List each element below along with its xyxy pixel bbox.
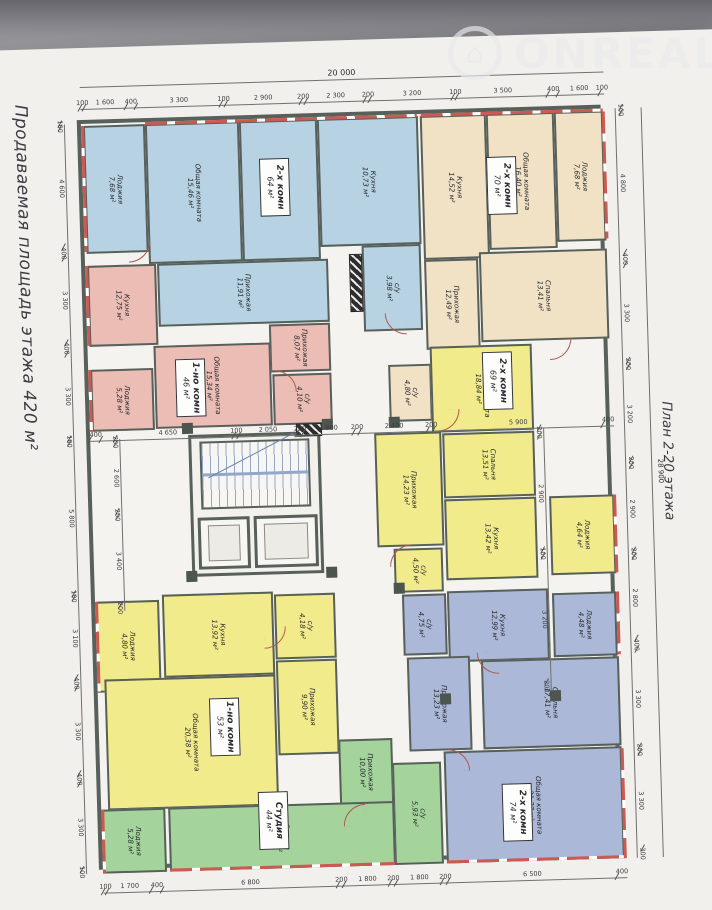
dimension-column-inner-left: 2002 6002003 400200 xyxy=(110,439,125,611)
photo-of-floor-plan: Продаваемая площадь этажа 420 м² План 2-… xyxy=(0,0,712,910)
room-studio44-loggia: Лоджия5,28 м² xyxy=(101,808,167,874)
room-violet74-wc: с/у4,75 м² xyxy=(402,593,448,655)
dimension-segment: 1 600 xyxy=(559,94,600,95)
room-beige70-kitchen: Кухня14,52 м² xyxy=(420,114,490,260)
dimension-segment: 2 800 xyxy=(629,557,640,639)
door-arc xyxy=(128,240,151,263)
dimension-segment: 3 300 xyxy=(72,689,84,775)
dimension-segment: 3 300 xyxy=(74,784,86,870)
column-marker xyxy=(186,571,197,582)
room-yellow69-bedroom: Спальня13,51 м² xyxy=(442,431,536,499)
room-yellow53-living: Общая комната20,38 м² xyxy=(104,674,279,810)
paper-sheet: Продаваемая площадь этажа 420 м² План 2-… xyxy=(0,29,712,910)
column-marker xyxy=(550,690,561,701)
dimension-segment: 3 200 xyxy=(623,367,635,461)
column-marker xyxy=(394,583,405,594)
room-yellow53-hall: Прихожая9,90 м² xyxy=(276,659,340,756)
dimension-segment: 3 300 xyxy=(632,650,644,747)
dimension-segment: 3 300 xyxy=(62,354,74,440)
stairwell xyxy=(199,438,311,509)
apartment-label-yellow53: 1-но комн53 м² xyxy=(209,698,241,757)
dimension-segment: 3 300 xyxy=(136,105,221,108)
elevator-shaft xyxy=(254,514,320,568)
room-pink46-kitchen: Кухня12,75 м² xyxy=(87,264,158,347)
room-beige70-hall: Прихожая12,49 м² xyxy=(424,258,481,350)
dimension-segment: 200 xyxy=(542,682,551,690)
vent-shaft xyxy=(349,254,364,312)
dimension-segment: 5 800 xyxy=(64,444,77,595)
room-beige70-bedroom: Спальня13,41 м² xyxy=(479,248,610,342)
dimension-row-bottom: 1001 7004006 8002001 8002001 8002006 500… xyxy=(103,868,627,894)
door-arc xyxy=(389,544,412,567)
dimension-segment: 4 800 xyxy=(616,113,629,254)
dimension-segment: 300 xyxy=(638,849,647,858)
apartment-label-pink46: 1-но комн46 м² xyxy=(175,358,207,417)
room-blue64-kitchen: Кухня10,73 м² xyxy=(317,116,422,247)
room-yellow69-hall: Прихожая14,23 м² xyxy=(374,431,444,547)
door-arc xyxy=(477,652,500,675)
room-blue64-loggia: Лоджия7,68 м² xyxy=(83,124,149,254)
room-studio44-wc: с/у5,93 м² xyxy=(392,762,444,865)
house-logo-icon: ⌂ xyxy=(448,26,502,80)
dimension-segment: 1 800 xyxy=(396,883,443,884)
dimension-segment: 3 500 xyxy=(458,95,549,98)
room-violet74-loggia: Лоджия4,48 м² xyxy=(552,591,618,657)
apartment-label-beige70: 2-х комн70 м² xyxy=(486,156,518,215)
room-beige70-loggia: Лоджия7,68 м² xyxy=(554,111,607,242)
room-blue64-hall: Прихожая11,91 м² xyxy=(157,259,330,327)
room-pink46-loggia: Лоджия5,28 м² xyxy=(90,368,155,432)
apartment-label-blue64: 2-х комн64 м² xyxy=(259,158,291,217)
dimension-segment: 3 100 xyxy=(69,598,80,679)
dimension-segment: 3 400 xyxy=(113,517,125,606)
stair-elevator-core xyxy=(188,431,324,577)
room-pink46-hall: Прихожая8,07 м² xyxy=(269,323,331,373)
door-arc xyxy=(549,338,572,361)
dimension-segment: 4 600 xyxy=(55,129,68,248)
floor-plan: 20 000 28 900 1001 6004003 3001002 90020… xyxy=(77,105,623,870)
column-marker xyxy=(440,693,451,704)
room-beige70-wc: с/у4,80 м² xyxy=(388,364,433,422)
apartment-label-studio44: Студия44 м² xyxy=(258,791,290,850)
dimension-segment: 2 900 xyxy=(626,466,638,551)
room-yellow69-kitchen: Кухня13,42 м² xyxy=(444,497,538,581)
dimension-segment: 2 300 xyxy=(306,101,366,103)
watermark: ⌂ ONREAL xyxy=(448,26,712,80)
dimension-segment: 6 500 xyxy=(448,877,617,882)
watermark-text: ONREAL xyxy=(514,29,712,78)
room-blue64-living: Общая комната15,46 м² xyxy=(145,121,243,264)
window-strip xyxy=(616,591,621,654)
dimension-segment: 200 xyxy=(115,606,124,611)
room-violet74-living: Общая комната21,37 м² xyxy=(444,746,625,863)
dimension-segment: 1 800 xyxy=(303,433,354,435)
dimension-segment: 1 700 xyxy=(108,891,152,892)
dimension-row-top: 1001 6004003 3001002 9002002 3002003 200… xyxy=(80,84,604,110)
elevator-shaft xyxy=(198,516,252,570)
dimension-segment: 3 300 xyxy=(620,264,632,361)
room-studio44-hall: Прихожая10,00 м² xyxy=(338,738,394,806)
dimension-segment: 3 200 xyxy=(371,98,454,100)
column-marker xyxy=(326,567,337,578)
apartment-label-yellow69: 2-х комн69 м² xyxy=(482,351,514,410)
dimension-segment: 3 300 xyxy=(59,258,71,344)
room-yellow69-loggia: Лоджия4,64 м² xyxy=(549,494,616,575)
dimension-segment: 100 xyxy=(77,870,86,874)
dimension-segment: 3 300 xyxy=(635,752,647,849)
dimension-segment: 2 600 xyxy=(110,444,121,512)
room-yellow53-kitchen: Кухня13,92 м² xyxy=(162,592,275,678)
dimension-segment: 1 800 xyxy=(344,884,391,885)
dimension-segment: 2 900 xyxy=(226,102,301,104)
door-arc xyxy=(385,312,408,335)
dimension-column-left: 1004 6004003 3004003 3001005 8001003 100… xyxy=(55,124,87,874)
sellable-area-note: Продаваемая площадь этажа 420 м² xyxy=(0,73,41,484)
dimension-segment: 6 800 xyxy=(162,886,339,891)
dimension-segment: 1 600 xyxy=(85,108,126,109)
apartment-label-violet74: 2-х комн74 м² xyxy=(502,783,534,842)
room-pink46-living: Общая комната15,34 м² xyxy=(153,342,272,428)
